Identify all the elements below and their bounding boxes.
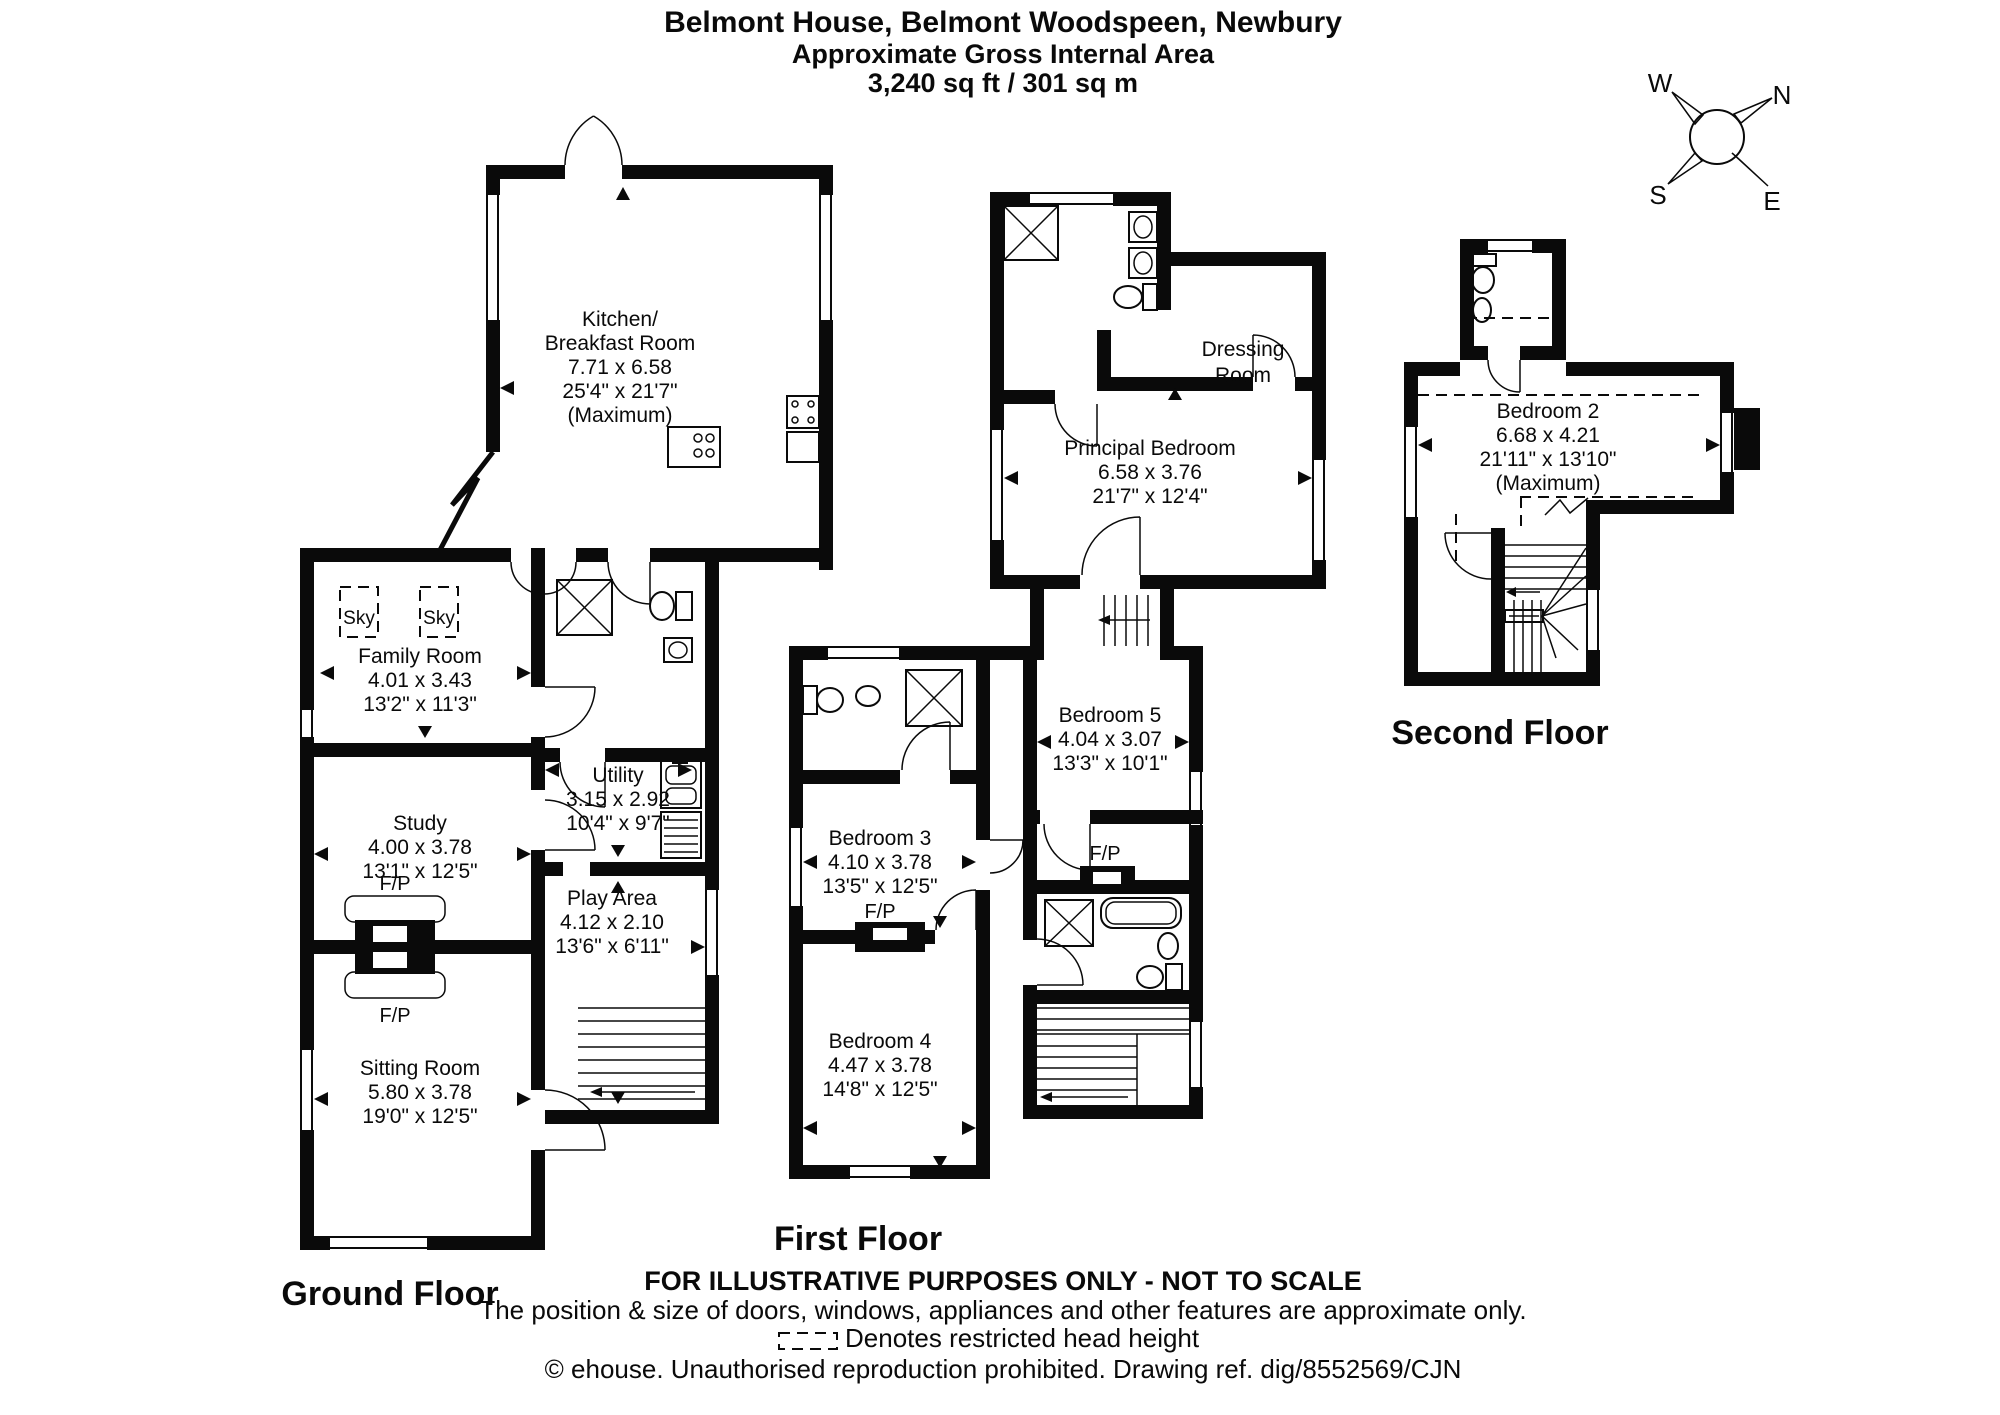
footer-restricted: Denotes restricted head height <box>845 1323 1200 1353</box>
compass-west: W <box>1648 68 1673 98</box>
room-label-sitting: Sitting Room <box>360 1057 480 1080</box>
page-title: Belmont House, Belmont Woodspeen, Newbur… <box>664 6 1342 39</box>
room-label-dressing-2: Room <box>1215 364 1271 387</box>
room-label-kitchen-2: Breakfast Room <box>545 332 696 355</box>
sink-icon <box>664 638 692 662</box>
sink-icon-ensuite-2 <box>1129 248 1157 278</box>
footer-copyright: © ehouse. Unauthorised reproduction proh… <box>545 1354 1462 1384</box>
toilet-icon-bath2 <box>1137 964 1182 990</box>
shower-icon-ensuite <box>1004 206 1058 260</box>
toilet-icon <box>650 592 692 620</box>
sink-icon-ensuite-1 <box>1129 212 1157 242</box>
room-dims-sitting-metric: 5.80 x 3.78 <box>368 1081 472 1104</box>
room-label-kitchen: Kitchen/ <box>582 308 658 331</box>
room-dims-bedroom3-metric: 4.10 x 3.78 <box>828 851 932 874</box>
room-label-play: Play Area <box>567 887 657 910</box>
footer-disclaimer: FOR ILLUSTRATIVE PURPOSES ONLY - NOT TO … <box>644 1266 1362 1296</box>
fireplace-label-study: F/P <box>379 873 410 895</box>
second-floor-stairs-icon <box>1505 545 1586 672</box>
room-note-kitchen: (Maximum) <box>568 404 673 427</box>
shower-icon-bath1 <box>906 670 962 726</box>
room-label-bedroom2: Bedroom 2 <box>1497 400 1600 423</box>
compass-north: N <box>1773 80 1792 110</box>
shower-icon-bath2 <box>1045 900 1093 946</box>
fireplace-label-bedroom3: F/P <box>864 901 895 923</box>
first-floor-stairs-icon <box>1037 1008 1189 1105</box>
room-dims-play-imperial: 13'6" x 6'11" <box>555 935 669 958</box>
toilet-icon-bath1 <box>803 686 843 714</box>
page-area: 3,240 sq ft / 301 sq m <box>868 68 1138 98</box>
skylight-label-2: Sky <box>423 608 455 629</box>
floorplan-page: Belmont House, Belmont Woodspeen, Newbur… <box>0 0 2000 1415</box>
hob-icon <box>668 427 720 467</box>
footer-approximate: The position & size of doors, windows, a… <box>479 1295 1526 1325</box>
ground-floor-title: Ground Floor <box>281 1275 498 1313</box>
toilet-icon-ensuite <box>1114 284 1157 310</box>
second-floor-title: Second Floor <box>1391 714 1608 752</box>
room-label-bedroom4: Bedroom 4 <box>829 1030 932 1053</box>
room-dims-study-metric: 4.00 x 3.78 <box>368 836 472 859</box>
room-dims-bedroom2-metric: 6.68 x 4.21 <box>1496 424 1600 447</box>
room-dims-play-metric: 4.12 x 2.10 <box>560 911 664 934</box>
range-cooker-icon <box>787 396 819 462</box>
compass-icon: W N S E <box>1648 68 1792 216</box>
room-dims-utility-imperial: 10'4" x 9'7" <box>566 812 670 835</box>
compass-east: E <box>1763 186 1780 216</box>
compass-south: S <box>1649 180 1666 210</box>
room-label-dressing: Dressing <box>1202 338 1285 361</box>
floorplan-drawing: Belmont House, Belmont Woodspeen, Newbur… <box>0 0 2000 1415</box>
room-dims-kitchen-imperial: 25'4" x 21'7" <box>562 380 677 403</box>
room-dims-bedroom4-metric: 4.47 x 3.78 <box>828 1054 932 1077</box>
room-label-principal: Principal Bedroom <box>1064 437 1236 460</box>
room-dims-bedroom2-imperial: 21'11" x 13'10" <box>1480 448 1617 471</box>
landing-stairs-icon <box>1098 595 1150 646</box>
room-dims-bedroom4-imperial: 14'8" x 12'5" <box>822 1078 937 1101</box>
room-dims-family-imperial: 13'2" x 11'3" <box>363 693 477 716</box>
fireplace-icon-bed3 <box>855 922 925 952</box>
room-dims-bedroom5-imperial: 13'3" x 10'1" <box>1052 752 1167 775</box>
room-dims-principal-imperial: 21'7" x 12'4" <box>1092 485 1207 508</box>
room-dims-family-metric: 4.01 x 3.43 <box>368 669 472 692</box>
second-floor-plan: Bedroom 2 6.68 x 4.21 21'11" x 13'10" (M… <box>1391 239 1760 752</box>
room-dims-sitting-imperial: 19'0" x 12'5" <box>362 1105 477 1128</box>
fireplace-label-sitting: F/P <box>379 1005 410 1027</box>
first-floor-title: First Floor <box>774 1220 942 1258</box>
room-dims-bedroom5-metric: 4.04 x 3.07 <box>1058 728 1162 751</box>
ground-floor-plan: Kitchen/ Breakfast Room 7.71 x 6.58 25'4… <box>281 116 833 1313</box>
sink-icon-2f <box>1473 298 1491 322</box>
page-subtitle: Approximate Gross Internal Area <box>792 39 1215 69</box>
fireplace-icon <box>345 896 445 998</box>
bath-icon <box>1101 898 1181 928</box>
room-label-family: Family Room <box>358 645 482 668</box>
first-floor-plan: Dressing Room Principal Bedroom 6.58 x 3… <box>774 192 1326 1258</box>
sink-icon-bath2 <box>1158 933 1178 959</box>
room-dims-kitchen-metric: 7.71 x 6.58 <box>568 356 672 379</box>
restricted-head-height-key-icon <box>779 1333 837 1349</box>
room-label-bedroom3: Bedroom 3 <box>829 827 932 850</box>
fireplace-icon-hall <box>1080 866 1135 894</box>
fireplace-label-hall: F/P <box>1089 843 1120 865</box>
room-label-utility: Utility <box>592 764 644 787</box>
sink-icon-bath1 <box>856 686 880 706</box>
room-label-study: Study <box>393 812 447 835</box>
room-dims-principal-metric: 6.58 x 3.76 <box>1098 461 1202 484</box>
room-dims-bedroom3-imperial: 13'5" x 12'5" <box>822 875 937 898</box>
footer: FOR ILLUSTRATIVE PURPOSES ONLY - NOT TO … <box>479 1266 1526 1384</box>
skylight-label-1: Sky <box>343 608 375 629</box>
break-line <box>440 452 493 550</box>
room-note-bedroom2: (Maximum) <box>1496 472 1601 495</box>
ground-stairs-icon <box>578 1008 705 1099</box>
room-dims-utility-metric: 3.15 x 2.92 <box>566 788 670 811</box>
shower-icon <box>557 580 612 635</box>
room-label-bedroom5: Bedroom 5 <box>1059 704 1162 727</box>
header: Belmont House, Belmont Woodspeen, Newbur… <box>664 6 1342 98</box>
